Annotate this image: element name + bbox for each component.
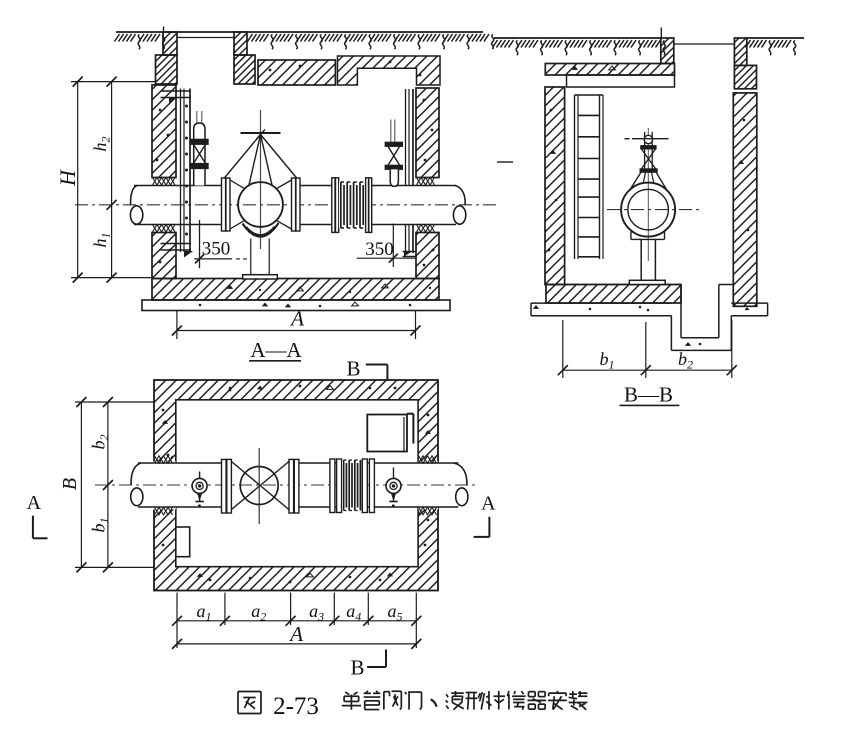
svg-text:B—B: B—B (624, 383, 673, 407)
svg-text:B: B (350, 656, 364, 680)
svg-text:350: 350 (202, 238, 231, 259)
svg-text:350: 350 (365, 239, 394, 260)
svg-text:A: A (289, 307, 304, 331)
svg-text:H: H (55, 169, 80, 187)
svg-text:B: B (59, 478, 81, 490)
svg-text:A: A (481, 493, 496, 515)
svg-text:A: A (27, 492, 42, 514)
svg-text:A—A: A—A (250, 338, 302, 362)
svg-text:A: A (288, 622, 303, 646)
svg-text:2-73: 2-73 (273, 693, 319, 720)
svg-text:B: B (346, 357, 360, 381)
